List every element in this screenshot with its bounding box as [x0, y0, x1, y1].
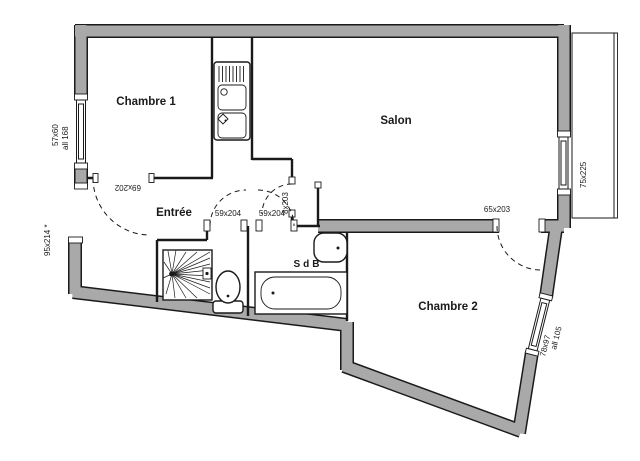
floor-plan-drawing: Chambre 1 Salon Entrée SdB Chambre 2 57x… — [0, 0, 640, 461]
chambre2-door-jamb — [539, 219, 545, 232]
shower — [163, 250, 212, 300]
balcony — [572, 33, 618, 218]
kitchen-sink — [214, 62, 250, 140]
room-label-chambre1: Chambre 1 — [116, 96, 176, 108]
sink-drain-dot — [225, 120, 227, 122]
floor-plan: Chambre 1 Salon Entrée SdB Chambre 2 57x… — [0, 0, 640, 461]
chambre2-door-jamb — [493, 219, 499, 232]
dim-door-chambre2: 65x203 — [484, 205, 511, 214]
washbasin-bowl — [314, 233, 347, 262]
room-label-sdb: SdB — [294, 259, 323, 270]
dim-window-chambre1: 57x60 — [51, 124, 60, 146]
room-label-chambre2: Chambre 2 — [418, 301, 477, 313]
chambre1-door-jamb — [149, 174, 154, 183]
window-glass — [79, 104, 84, 159]
outer-walls — [73, 25, 564, 433]
salon-passage-jamb — [289, 177, 295, 184]
entrance-door-jamb — [69, 237, 83, 243]
toilet-bowl — [216, 271, 240, 303]
window-jamb — [558, 189, 571, 195]
bathtub-drain-dot — [272, 292, 275, 295]
toilet — [213, 271, 243, 313]
dim-entrance-door: 95x214 * — [43, 224, 52, 256]
washbasin-drain-dot — [337, 247, 340, 250]
window-jamb — [75, 163, 88, 169]
wc-door-jamb — [204, 220, 210, 231]
dim-door-wc: 59x204 — [215, 209, 242, 218]
toilet-drain-dot — [227, 295, 230, 298]
shower-drain-dot — [169, 272, 174, 277]
chambre1-door-jamb — [93, 174, 98, 183]
dim-door-salon: 8x203 — [281, 192, 290, 214]
room-label-entree: Entrée — [156, 207, 192, 219]
window-salon — [558, 131, 571, 195]
dim-window-salon: 75x225 — [579, 161, 588, 188]
bathtub — [255, 272, 347, 314]
dim-door-chambre1: 69x202 — [114, 183, 141, 192]
shower-tap-dot — [205, 272, 208, 275]
dim-window-chambre1-sill: all 168 — [61, 126, 70, 150]
room-label-salon: Salon — [380, 115, 411, 127]
wc-door-jamb — [241, 220, 247, 231]
balcony-railing — [614, 33, 618, 218]
window-chambre1 — [75, 94, 88, 169]
balcony-floor — [572, 33, 614, 218]
washbasin — [314, 233, 347, 262]
chambre2-door-swing — [497, 226, 541, 270]
sdb-door-jamb — [256, 220, 262, 231]
dim-window-chambre2-sill: all 105 — [549, 325, 564, 351]
entrance-door-jamb — [75, 183, 88, 189]
window-jamb — [75, 94, 88, 100]
window-glass — [561, 141, 566, 185]
window-jamb — [558, 131, 571, 137]
outer-wall-fill — [73, 25, 564, 433]
salon-wall-jamb — [315, 182, 321, 188]
